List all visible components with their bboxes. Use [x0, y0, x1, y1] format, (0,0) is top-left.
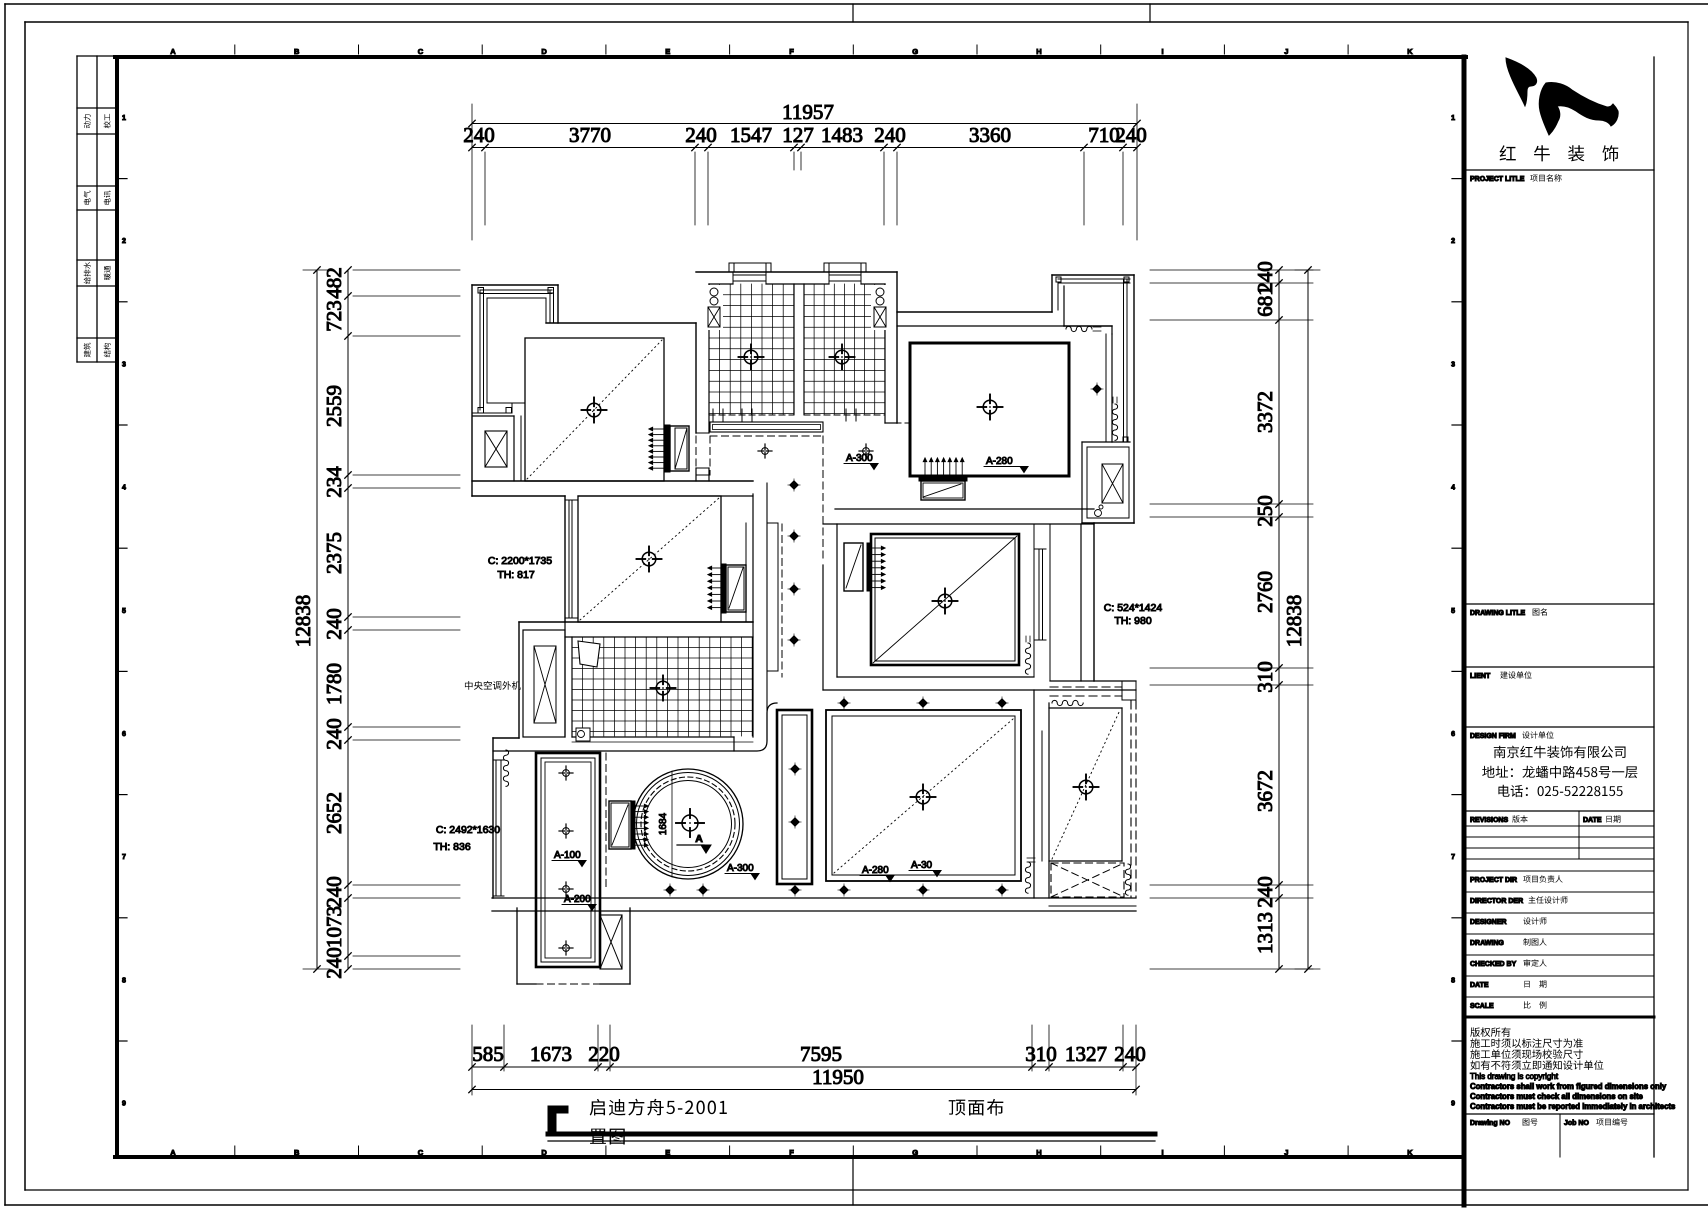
- svg-text:SCALE: SCALE: [1470, 1003, 1494, 1010]
- svg-text:1673: 1673: [530, 1042, 572, 1066]
- svg-text:1483: 1483: [821, 123, 863, 147]
- svg-text:240: 240: [1253, 876, 1277, 908]
- svg-text:C: 2492*1630: C: 2492*1630: [436, 824, 500, 836]
- svg-text:TH: 980: TH: 980: [1114, 615, 1152, 627]
- svg-text:A-200: A-200: [564, 894, 591, 905]
- svg-text:234: 234: [322, 466, 346, 498]
- svg-text:Contractors shall work from fi: Contractors shall work from figured dime…: [1470, 1082, 1667, 1091]
- svg-text:3360: 3360: [969, 123, 1011, 147]
- svg-text:3672: 3672: [1253, 770, 1277, 812]
- svg-text:240: 240: [1114, 1042, 1146, 1066]
- svg-text:A-280: A-280: [986, 456, 1013, 467]
- svg-text:DIRECTOR DER: DIRECTOR DER: [1470, 898, 1523, 905]
- svg-text:7595: 7595: [800, 1042, 842, 1066]
- svg-text:C: C: [418, 47, 424, 56]
- svg-text:9: 9: [1451, 1101, 1455, 1108]
- svg-text:5: 5: [122, 608, 126, 615]
- svg-text:PROJECT LITLE: PROJECT LITLE: [1470, 176, 1525, 183]
- svg-text:2: 2: [1451, 238, 1455, 245]
- svg-text:482: 482: [322, 267, 346, 299]
- svg-text:Drawing NO: Drawing NO: [1470, 1120, 1511, 1127]
- svg-text:1780: 1780: [322, 663, 346, 705]
- svg-text:2652: 2652: [322, 792, 346, 834]
- svg-text:A-280: A-280: [862, 865, 889, 876]
- svg-text:3: 3: [1451, 361, 1455, 368]
- svg-text:TH: 836: TH: 836: [433, 841, 471, 853]
- svg-text:LIENT: LIENT: [1470, 673, 1491, 680]
- svg-text:F: F: [789, 1148, 794, 1157]
- svg-text:DATE: DATE: [1583, 817, 1602, 824]
- svg-text:D: D: [541, 1148, 547, 1157]
- svg-text:Contractors must check all dim: Contractors must check all dimensions on…: [1470, 1092, 1644, 1101]
- svg-text:240: 240: [322, 876, 346, 908]
- svg-text:PROJECT DIR: PROJECT DIR: [1470, 877, 1517, 884]
- svg-text:6: 6: [1451, 731, 1455, 738]
- svg-text:F: F: [789, 47, 794, 56]
- svg-text:240: 240: [874, 123, 906, 147]
- svg-text:7: 7: [122, 854, 126, 861]
- svg-text:1547: 1547: [730, 123, 772, 147]
- svg-text:A-300: A-300: [727, 863, 754, 874]
- svg-text:1684: 1684: [658, 812, 669, 835]
- svg-text:3: 3: [122, 361, 126, 368]
- svg-text:B: B: [294, 1148, 300, 1157]
- svg-text:8: 8: [1451, 977, 1455, 984]
- svg-text:1313: 1313: [1253, 912, 1277, 954]
- svg-text:240: 240: [322, 947, 346, 979]
- svg-text:B: B: [294, 47, 300, 56]
- svg-text:310: 310: [1025, 1042, 1057, 1066]
- svg-text:C: C: [418, 1148, 424, 1157]
- svg-text:240: 240: [685, 123, 717, 147]
- svg-text:4: 4: [122, 485, 126, 492]
- svg-text:I: I: [1162, 1148, 1164, 1157]
- svg-text:TH: 817: TH: 817: [497, 569, 535, 581]
- svg-text:2: 2: [122, 238, 126, 245]
- svg-text:C: 524*1424: C: 524*1424: [1104, 602, 1163, 614]
- svg-text:A: A: [695, 833, 703, 845]
- svg-text:240: 240: [463, 123, 495, 147]
- svg-text:DRAWING: DRAWING: [1470, 940, 1504, 947]
- svg-text:D: D: [541, 47, 547, 56]
- svg-text:240: 240: [322, 718, 346, 750]
- svg-text:127: 127: [782, 123, 814, 147]
- svg-text:4: 4: [1451, 485, 1455, 492]
- svg-text:2559: 2559: [322, 385, 346, 427]
- svg-text:250: 250: [1253, 495, 1277, 527]
- svg-text:A-300: A-300: [846, 453, 873, 464]
- svg-text:I: I: [1162, 47, 1164, 56]
- svg-text:A-30: A-30: [911, 860, 933, 871]
- svg-text:3770: 3770: [569, 123, 611, 147]
- svg-text:12838: 12838: [1282, 595, 1306, 648]
- svg-text:1073: 1073: [322, 906, 346, 948]
- svg-text:723: 723: [322, 300, 346, 332]
- svg-text:E: E: [665, 1148, 670, 1157]
- svg-text:K: K: [1407, 47, 1413, 56]
- svg-text:7: 7: [1451, 854, 1455, 861]
- svg-text:585: 585: [472, 1042, 504, 1066]
- svg-text:11957: 11957: [782, 100, 834, 124]
- svg-text:G: G: [912, 1148, 918, 1157]
- svg-text:G: G: [912, 47, 918, 56]
- svg-text:Contractors must be reported i: Contractors must be reported immediately…: [1470, 1102, 1676, 1111]
- svg-text:This drawing is copyright: This drawing is copyright: [1470, 1072, 1559, 1081]
- svg-text:DRAWING LITLE: DRAWING LITLE: [1470, 610, 1526, 617]
- svg-text:220: 220: [588, 1042, 620, 1066]
- svg-text:1: 1: [122, 115, 126, 122]
- svg-text:5: 5: [1451, 608, 1455, 615]
- svg-text:DATE: DATE: [1470, 982, 1489, 989]
- svg-text:2375: 2375: [322, 532, 346, 574]
- svg-text:H: H: [1036, 1148, 1041, 1157]
- svg-text:8: 8: [122, 977, 126, 984]
- svg-text:A: A: [170, 1148, 176, 1157]
- svg-text:DESIGN FIRM: DESIGN FIRM: [1470, 733, 1516, 740]
- svg-text:240: 240: [1115, 123, 1147, 147]
- svg-text:Job NO: Job NO: [1564, 1120, 1589, 1127]
- svg-text:J: J: [1284, 47, 1288, 56]
- svg-text:3372: 3372: [1253, 391, 1277, 433]
- svg-text:240: 240: [322, 608, 346, 640]
- svg-text:DESIGNER: DESIGNER: [1470, 919, 1507, 926]
- svg-text:A: A: [170, 47, 176, 56]
- svg-text:A-100: A-100: [554, 850, 581, 861]
- svg-text:6: 6: [122, 731, 126, 738]
- svg-text:1: 1: [1451, 115, 1455, 122]
- svg-text:681: 681: [1253, 285, 1277, 317]
- svg-text:C: 2200*1735: C: 2200*1735: [488, 555, 552, 567]
- svg-text:11950: 11950: [812, 1065, 864, 1089]
- svg-text:K: K: [1407, 1148, 1413, 1157]
- svg-text:9: 9: [122, 1101, 126, 1108]
- svg-text:1327: 1327: [1065, 1042, 1107, 1066]
- svg-text:310: 310: [1253, 661, 1277, 693]
- svg-text:REVISIONS: REVISIONS: [1470, 817, 1508, 824]
- svg-text:12838: 12838: [291, 595, 315, 648]
- svg-text:J: J: [1284, 1148, 1288, 1157]
- svg-text:2760: 2760: [1253, 571, 1277, 613]
- svg-text:E: E: [665, 47, 670, 56]
- svg-text:CHECKED BY: CHECKED BY: [1470, 961, 1517, 968]
- svg-text:H: H: [1036, 47, 1041, 56]
